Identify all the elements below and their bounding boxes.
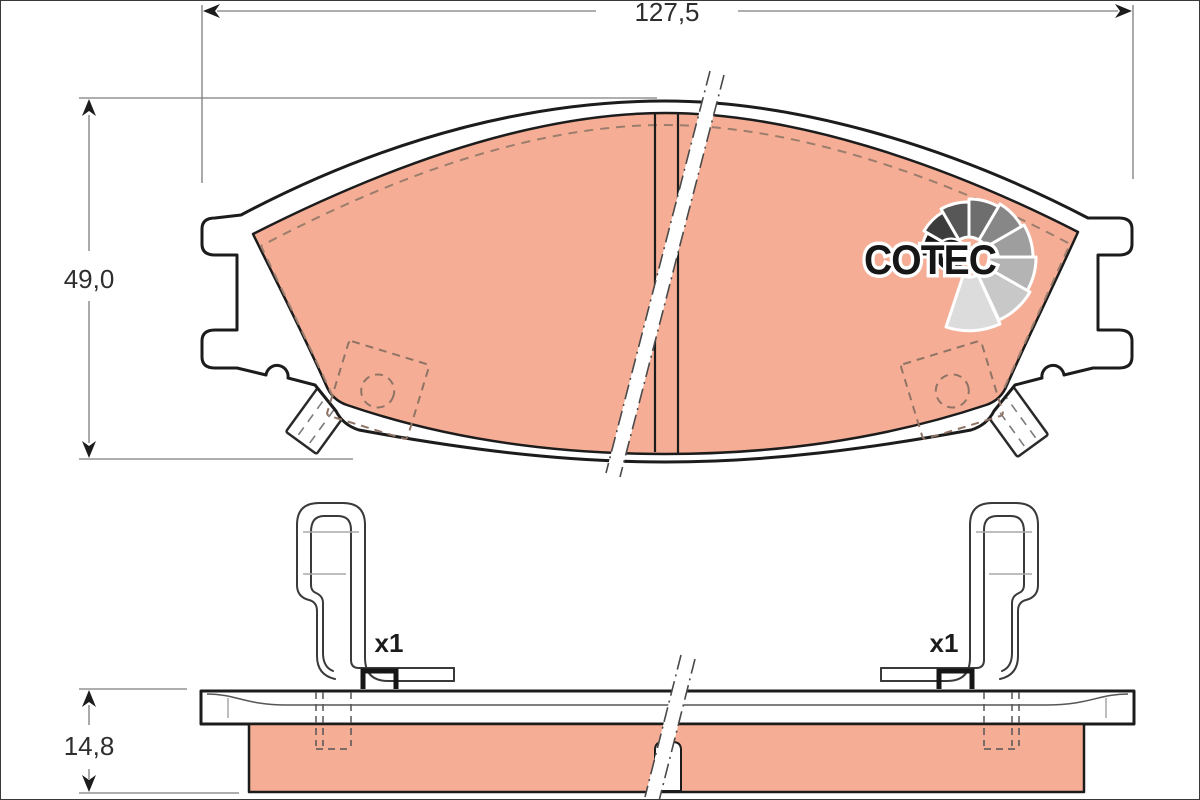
- arrowhead-up: [82, 690, 96, 707]
- dimension-width-label: 127,5: [634, 1, 699, 27]
- clip-z-bend: [297, 585, 335, 679]
- quantity-label-left: x1: [375, 628, 404, 658]
- side-view: x1 x1: [201, 503, 1134, 799]
- brake-pad-technical-drawing: 127,5 49,0 14,8: [1, 1, 1199, 799]
- technical-drawing-frame: 127,5 49,0 14,8: [0, 0, 1200, 800]
- quantity-label-right: x1: [930, 628, 959, 658]
- arrowhead-down: [82, 441, 96, 458]
- logo-wordmark: COTEC: [864, 236, 997, 283]
- dimension-height-label: 49,0: [64, 264, 115, 294]
- clip-outer-contour: [881, 503, 1038, 681]
- dimension-thickness-label: 14,8: [64, 731, 115, 761]
- front-view: COTEC: [202, 71, 1132, 477]
- arrowhead-up: [82, 99, 96, 116]
- clip-z-bend-inner: [1002, 585, 1024, 671]
- clip-z-bend-inner: [311, 585, 333, 671]
- clip-z-bend: [1000, 585, 1038, 679]
- retaining-clip-right: [881, 503, 1038, 681]
